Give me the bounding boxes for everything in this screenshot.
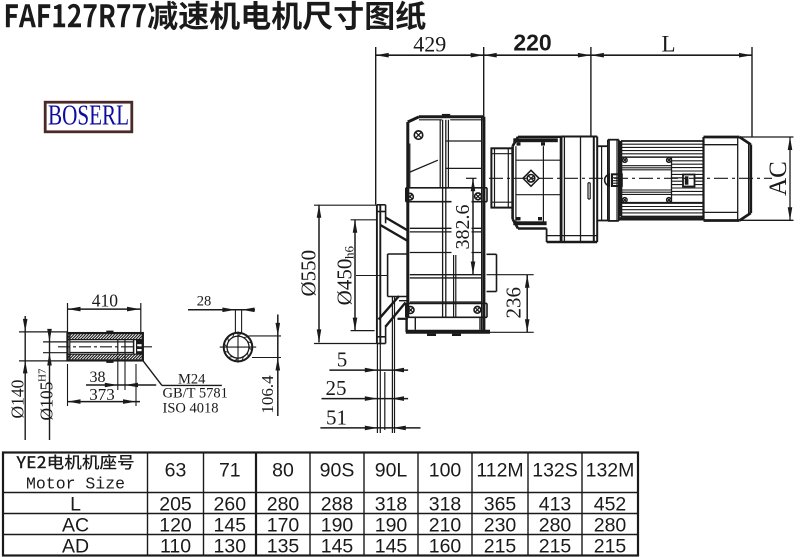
svg-text:120: 120 [159,515,192,537]
svg-text:280: 280 [267,494,300,516]
svg-text:112M: 112M [476,460,523,482]
svg-text:318: 318 [429,494,462,516]
svg-text:51: 51 [326,405,347,429]
svg-text:Ø105: Ø105 [36,381,56,420]
svg-text:413: 413 [539,494,572,516]
svg-text:25: 25 [326,376,347,400]
svg-text:145: 145 [375,536,408,557]
svg-text:Ø550: Ø550 [297,250,321,297]
svg-text:220: 220 [513,30,551,56]
svg-text:106.4: 106.4 [258,375,277,414]
svg-text:135: 135 [267,536,300,557]
svg-text:100: 100 [429,460,462,482]
svg-text:205: 205 [159,494,192,516]
svg-text:190: 190 [375,515,408,537]
svg-text:80: 80 [272,460,294,482]
svg-text:210: 210 [429,515,462,537]
svg-text:90L: 90L [375,460,408,482]
svg-text:GB/T 5781: GB/T 5781 [163,386,228,402]
svg-text:365: 365 [484,494,517,516]
svg-text:110: 110 [160,536,191,557]
svg-text:28: 28 [197,293,212,309]
svg-text:L: L [661,32,675,57]
svg-text:410: 410 [92,291,119,311]
svg-text:145: 145 [321,536,354,557]
svg-text:215: 215 [539,536,572,557]
svg-text:Motor Size: Motor Size [26,474,125,493]
svg-text:215: 215 [484,536,517,557]
svg-text:h6: h6 [342,246,357,260]
svg-text:AD: AD [62,536,89,557]
svg-text:H7: H7 [36,368,48,382]
svg-text:318: 318 [375,494,408,516]
svg-text:145: 145 [214,515,247,537]
svg-text:170: 170 [267,515,300,537]
svg-text:260: 260 [214,494,247,516]
svg-text:Ø450: Ø450 [333,259,357,306]
svg-text:429: 429 [413,32,446,57]
svg-text:132S: 132S [532,460,578,482]
svg-text:63: 63 [165,460,187,482]
svg-text:230: 230 [484,515,517,537]
svg-text:132M: 132M [586,460,635,482]
svg-text:AC: AC [62,515,89,537]
svg-text:280: 280 [594,515,627,537]
svg-text:130: 130 [214,536,247,557]
svg-text:Ø140: Ø140 [8,379,28,418]
svg-text:452: 452 [594,494,627,516]
svg-text:5: 5 [337,348,348,372]
svg-text:ISO 4018: ISO 4018 [163,400,219,416]
svg-text:71: 71 [219,460,241,482]
svg-text:L: L [70,494,81,516]
svg-text:373: 373 [89,385,115,404]
svg-text:215: 215 [594,536,627,557]
svg-text:236: 236 [502,287,526,319]
svg-text:90S: 90S [320,460,355,482]
svg-text:190: 190 [321,515,354,537]
svg-text:38: 38 [90,369,106,386]
svg-text:BOSERL: BOSERL [48,100,129,132]
svg-text:288: 288 [321,494,354,516]
svg-text:160: 160 [429,536,462,557]
svg-text:382.6: 382.6 [452,205,474,250]
svg-text:280: 280 [539,515,572,537]
